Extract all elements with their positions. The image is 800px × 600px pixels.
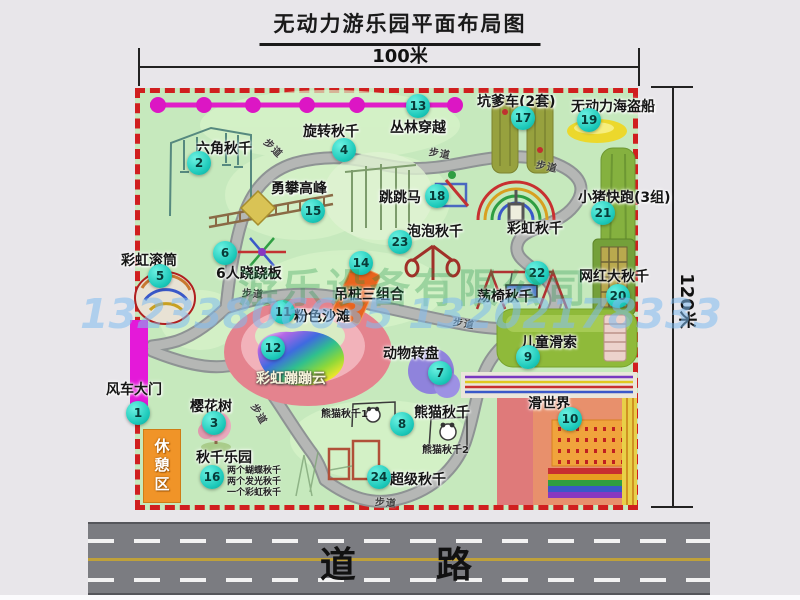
attraction-number-badge: 9 <box>516 345 540 369</box>
attraction-number-badge: 17 <box>511 106 535 130</box>
attraction-number-badge: 11 <box>271 300 295 324</box>
attraction-number-badge: 1 <box>126 401 150 425</box>
attraction-label: 风车大门 <box>106 379 162 399</box>
attraction-number-badge: 16 <box>200 465 224 489</box>
footpath-label: 步道 <box>261 134 287 160</box>
attraction-label: 勇攀高峰 <box>271 178 327 198</box>
attraction-number-badge: 7 <box>428 361 452 385</box>
footpath-label: 步道 <box>248 400 272 427</box>
attraction-label: 秋千乐园 <box>196 447 252 467</box>
footpath-label: 步道 <box>535 156 560 175</box>
attraction-number-badge: 20 <box>606 284 630 308</box>
attraction-number-badge: 10 <box>558 407 582 431</box>
footpath-label: 步道 <box>241 284 264 301</box>
attraction-label: 彩虹秋千 <box>507 218 563 238</box>
attraction-label: 跳跳马 <box>379 187 421 207</box>
attraction-number-badge: 15 <box>301 199 325 223</box>
attraction-number-badge: 4 <box>332 138 356 162</box>
attraction-number-badge: 21 <box>591 201 615 225</box>
attraction-number-badge: 14 <box>349 251 373 275</box>
attraction-number-badge: 24 <box>367 465 391 489</box>
attraction-number-badge: 5 <box>148 264 172 288</box>
attraction-number-badge: 12 <box>261 336 285 360</box>
footpath-label: 步道 <box>428 143 452 162</box>
attraction-label: 熊猫秋千 <box>414 402 470 422</box>
attraction-number-badge: 2 <box>187 151 211 175</box>
sub-label: 熊猫秋千2 <box>422 441 469 456</box>
attraction-number-badge: 6 <box>213 241 237 265</box>
attraction-label: 网红大秋千 <box>579 266 649 286</box>
attraction-label: 粉色沙滩 <box>294 306 350 326</box>
attraction-number-badge: 3 <box>202 411 226 435</box>
attraction-markers: 两个蝴蝶秋千 两个发光秋千 一个彩虹秋千 风车大门 1 六角秋千 2 樱花树 3… <box>0 0 800 600</box>
footpath-label: 步道 <box>452 313 476 332</box>
attraction-number-badge: 13 <box>406 94 430 118</box>
sub-label: 熊猫秋千1 <box>321 405 368 420</box>
page-title: 无动力游乐园平面布局图 <box>260 8 541 46</box>
attraction-label: 小猪快跑(3组) <box>578 187 671 207</box>
attraction-label: 动物转盘 <box>383 343 439 363</box>
attraction-label: 丛林穿越 <box>390 117 446 137</box>
attraction-number-badge: 18 <box>425 184 449 208</box>
attraction-label: 超级秋千 <box>390 469 446 489</box>
attraction-label: 吊桩三组合 <box>334 284 404 304</box>
attraction-label: 6人跷跷板 <box>216 263 282 283</box>
attraction-label: 荡椅秋千 <box>477 286 533 306</box>
attraction-label: 彩虹蹦蹦云 <box>256 368 326 388</box>
attraction-label: 泡泡秋千 <box>407 221 463 241</box>
swing-park-notes: 两个蝴蝶秋千 两个发光秋千 一个彩虹秋千 <box>227 466 281 499</box>
footpath-label: 步道 <box>374 493 397 510</box>
attraction-number-badge: 23 <box>388 230 412 254</box>
attraction-number-badge: 19 <box>577 108 601 132</box>
attraction-number-badge: 22 <box>525 261 549 285</box>
attraction-number-badge: 8 <box>390 412 414 436</box>
attraction-label: 旋转秋千 <box>303 121 359 141</box>
